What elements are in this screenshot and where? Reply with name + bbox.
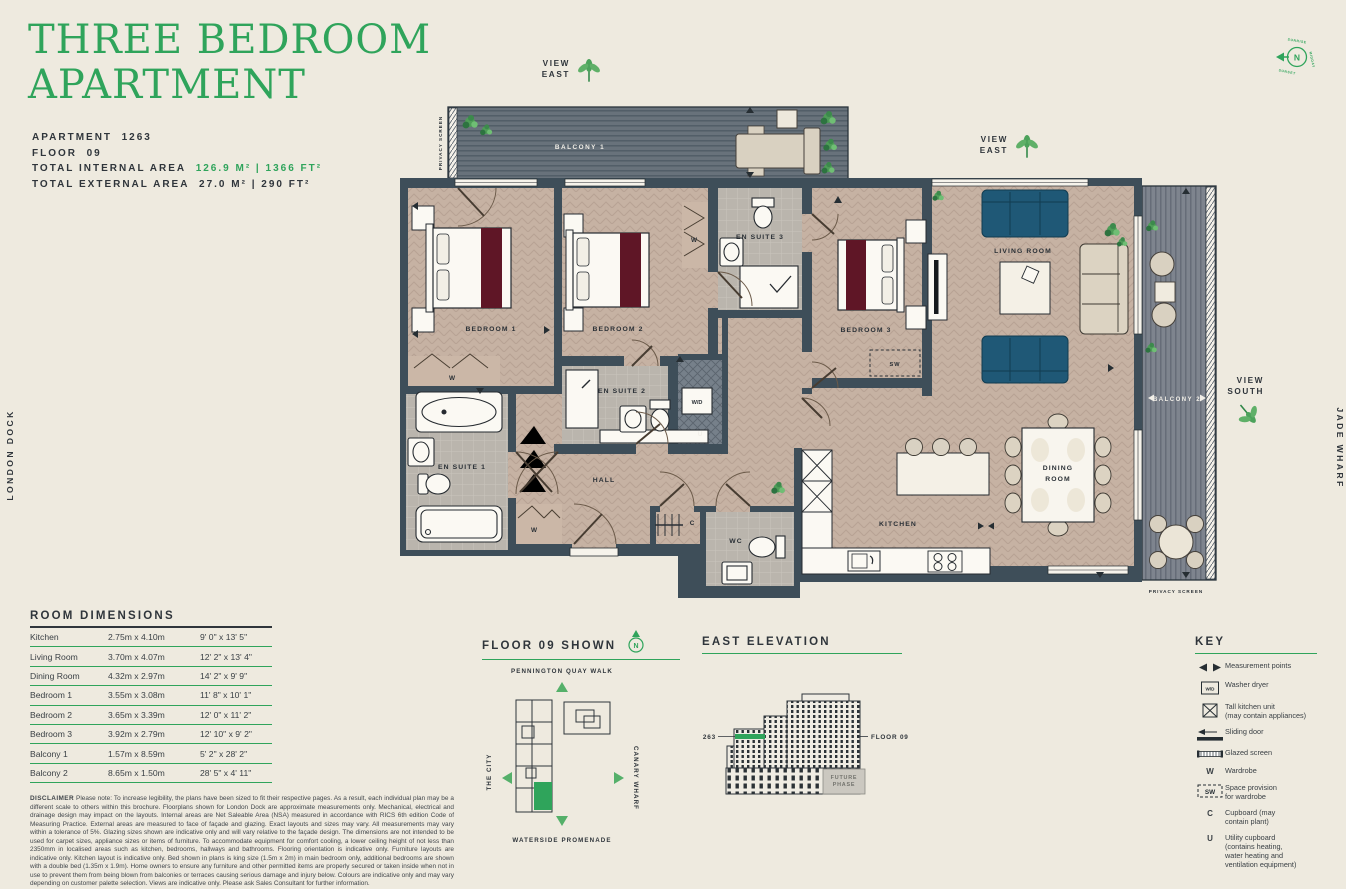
street-right-label: CANARY WHARF — [632, 746, 639, 810]
dining-room-label-2: ROOM — [1045, 476, 1071, 483]
highlighted-floor — [735, 734, 765, 739]
space-wardrobe-label: SW — [889, 362, 900, 368]
key-item: Glazed screen — [1195, 748, 1343, 759]
key-item-label: Space provision for wardrobe — [1225, 783, 1277, 801]
key-item: C Cupboard (may contain plant) — [1195, 808, 1343, 826]
key-item: Measurement points — [1195, 661, 1343, 673]
row-imperial: 12' 10" x 9' 2" — [200, 729, 272, 739]
utility-label: U — [698, 431, 703, 438]
washer-dryer-icon: W/D — [1195, 680, 1225, 695]
bedroom-3-label: BEDROOM 3 — [840, 327, 891, 334]
utility-symbol: U — [1195, 833, 1225, 869]
row-room: Balcony 1 — [30, 749, 108, 759]
key-item-label: Glazed screen — [1225, 748, 1272, 759]
ensuite-2-label: EN SUITE 2 — [598, 388, 646, 395]
key-item: SW Space provision for wardrobe — [1195, 783, 1343, 801]
key-heading: KEY — [1195, 636, 1343, 648]
ensuite-3-label: EN SUITE 3 — [736, 234, 784, 241]
floor-shown-heading: FLOOR 09 SHOWN — [482, 640, 616, 652]
kitchen-label: KITCHEN — [879, 521, 917, 528]
future-phase-label-2: PHASE — [833, 782, 856, 788]
view-east-mid-icon — [1015, 135, 1040, 158]
building-outline-2 — [564, 702, 610, 734]
view-east-mid-label-1: VIEW — [981, 135, 1008, 144]
street-top-label: PENNINGTON QUAY WALK — [511, 668, 613, 675]
external-area-label: TOTAL EXTERNAL AREA — [32, 179, 189, 190]
floor-number: 09 — [87, 148, 102, 159]
view-east-mid-label-2: EAST — [980, 146, 1008, 155]
row-room: Balcony 2 — [30, 768, 108, 778]
disclaimer-body: Please note: To increase legibility, the… — [30, 795, 454, 887]
row-imperial: 14' 2" x 9' 9" — [200, 671, 272, 681]
table-row: Kitchen2.75m x 4.10m9' 0" x 13' 5" — [30, 628, 272, 647]
row-room: Dining Room — [30, 671, 108, 681]
svg-text:SW: SW — [1205, 789, 1216, 796]
wardrobe-label: W — [449, 375, 456, 382]
row-metric: 3.55m x 3.08m — [108, 690, 200, 700]
compass-midday: MIDDAY — [1308, 51, 1315, 68]
row-room: Living Room — [30, 652, 108, 662]
table-row: Living Room3.70m x 4.07m12' 2" x 13' 4" — [30, 647, 272, 666]
wardrobe-bed2: W — [682, 202, 708, 268]
tall-kitchen-unit-icon — [1195, 702, 1225, 720]
key-item: W Wardrobe — [1195, 766, 1343, 776]
title-line-1: THREE BEDROOM — [28, 18, 431, 63]
row-metric: 8.65m x 1.50m — [108, 768, 200, 778]
wardrobe-symbol: W — [1195, 766, 1225, 776]
glazed-screen-icon — [1195, 748, 1225, 759]
hall-label: HALL — [593, 477, 616, 484]
row-room: Bedroom 2 — [30, 710, 108, 720]
key-item: Sliding door — [1195, 727, 1343, 741]
compass-icon: N SUNRISE MIDDAY SUNSET — [1276, 37, 1316, 75]
elevation-floor-label: FLOOR 09 — [871, 734, 909, 741]
kitchen-island — [897, 453, 989, 495]
street-left-label: THE CITY — [486, 754, 493, 791]
key-item-label: Washer dryer — [1225, 680, 1269, 695]
table-row: Dining Room4.32m x 2.97m14' 2" x 9' 9" — [30, 667, 272, 686]
svg-text:N: N — [633, 643, 638, 650]
internal-area-value: 126.9 M² | 1366 FT² — [196, 163, 322, 174]
internal-area-label: TOTAL INTERNAL AREA — [32, 163, 186, 174]
privacy-screen-panel — [449, 108, 457, 178]
row-imperial: 5' 2" x 28' 2" — [200, 749, 272, 759]
key-item-label: Sliding door — [1225, 727, 1264, 741]
view-east-top-label-2: EAST — [542, 70, 570, 79]
view-south-label-2: SOUTH — [1227, 387, 1264, 396]
future-phase-label-1: FUTURE — [831, 775, 858, 781]
compass-sunrise: SUNRISE — [1287, 37, 1307, 44]
east-elevation-heading: EAST ELEVATION — [702, 636, 920, 648]
row-metric: 2.75m x 4.10m — [108, 632, 200, 642]
key-item-label: Tall kitchen unit (may contain appliance… — [1225, 702, 1306, 720]
view-east-top-label-1: VIEW — [543, 59, 570, 68]
east-elevation-section: EAST ELEVATION — [702, 636, 920, 829]
row-room: Kitchen — [30, 632, 108, 642]
row-imperial: 12' 0" x 11' 2" — [200, 710, 272, 720]
bedroom-1-label: BEDROOM 1 — [465, 326, 516, 333]
entrance-threshold — [570, 548, 618, 556]
key-section: KEY Measurement points W/D Washer dryer … — [1195, 636, 1343, 869]
site-plan: PENNINGTON QUAY WALK THE CITY CANARY WHA… — [482, 660, 682, 850]
row-metric: 4.32m x 2.97m — [108, 671, 200, 681]
sliding-door-icon — [1195, 727, 1225, 741]
floor-shown-section: FLOOR 09 SHOWN N PENNINGTON QUAY WALK — [482, 636, 687, 855]
measurement-points-icon — [1195, 661, 1225, 673]
brochure-page: BALCONY 1 PRIVACY SCREEN — [0, 0, 1346, 889]
room-dimensions-heading: ROOM DIMENSIONS — [30, 610, 272, 628]
arrow-south — [556, 816, 568, 826]
table-row: Bedroom 13.55m x 3.08m11' 8" x 10' 1" — [30, 686, 272, 705]
sofa-beige — [1080, 244, 1128, 334]
title-line-2: APARTMENT — [28, 63, 431, 108]
elevation-drawing: FUTURE PHASE 1263 FLOOR 09 — [702, 654, 914, 824]
privacy-screen-label-left: PRIVACY SCREEN — [438, 116, 443, 170]
privacy-screen-label-bottom: PRIVACY SCREEN — [1149, 589, 1203, 594]
wc-label: WC — [729, 538, 743, 545]
arrow-east — [614, 772, 624, 784]
dining-room-label-1: DINING — [1043, 465, 1073, 472]
elevation-apartment-label: 1263 — [702, 734, 716, 741]
arrow-west — [502, 772, 512, 784]
view-south-label-1: VIEW — [1237, 376, 1264, 385]
balcony-2: BALCONY 2 — [1142, 186, 1216, 580]
cupboard-symbol: C — [1195, 808, 1225, 826]
row-metric: 3.65m x 3.39m — [108, 710, 200, 720]
row-metric: 3.92m x 2.79m — [108, 729, 200, 739]
table-row: Bedroom 33.92m x 2.79m12' 10" x 9' 2" — [30, 725, 272, 744]
apartment-label: APARTMENT — [32, 132, 112, 143]
north-icon: N — [625, 630, 647, 654]
london-dock-label: LONDON DOCK — [5, 409, 15, 500]
floor-label: FLOOR — [32, 148, 77, 159]
key-item-label: Wardrobe — [1225, 766, 1257, 776]
table-row: Balcony 11.57m x 8.59m5' 2" x 28' 2" — [30, 744, 272, 763]
row-imperial: 9' 0" x 13' 5" — [200, 632, 272, 642]
key-item-label: Cupboard (may contain plant) — [1225, 808, 1275, 826]
key-item-label: Utility cupboard (contains heating, wate… — [1225, 833, 1296, 869]
row-room: Bedroom 3 — [30, 729, 108, 739]
balcony-1-label: BALCONY 1 — [555, 144, 605, 151]
wardrobe-label: W — [691, 237, 698, 244]
disclaimer-label: DISCLAIMER — [30, 795, 74, 802]
space-wardrobe-icon: SW — [1195, 783, 1225, 801]
svg-text:W/D: W/D — [1206, 687, 1216, 692]
ensuite-1-label: EN SUITE 1 — [438, 464, 486, 471]
wardrobe-label: W — [531, 527, 538, 534]
cupboard-label: C — [690, 520, 695, 527]
view-east-top-icon — [577, 59, 602, 82]
bedroom-2-label: BEDROOM 2 — [592, 326, 643, 333]
key-item: Tall kitchen unit (may contain appliance… — [1195, 702, 1343, 720]
row-imperial: 11' 8" x 10' 1" — [200, 690, 272, 700]
room-dimensions-table: ROOM DIMENSIONS Kitchen2.75m x 4.10m9' 0… — [30, 610, 272, 783]
row-metric: 3.70m x 4.07m — [108, 652, 200, 662]
row-metric: 1.57m x 8.59m — [108, 749, 200, 759]
apartment-number: 1263 — [122, 132, 152, 143]
key-item: W/D Washer dryer — [1195, 680, 1343, 695]
jade-wharf-label: JADE WHARF — [1335, 407, 1345, 488]
compass-north: N — [1294, 53, 1300, 63]
key-item-label: Measurement points — [1225, 661, 1291, 673]
view-south-icon — [1231, 397, 1265, 430]
row-imperial: 12' 2" x 13' 4" — [200, 652, 272, 662]
compass-sunset: SUNSET — [1278, 68, 1296, 76]
external-area-value: 27.0 M² | 290 FT² — [199, 179, 310, 190]
table-row: Bedroom 23.65m x 3.39m12' 0" x 11' 2" — [30, 706, 272, 725]
row-imperial: 28' 5" x 4' 11" — [200, 768, 272, 778]
arrow-north — [556, 682, 568, 692]
balcony-1: BALCONY 1 — [448, 107, 848, 179]
highlighted-unit — [534, 782, 552, 810]
table-row: Balcony 28.65m x 1.50m28' 5" x 4' 11" — [30, 764, 272, 783]
privacy-screen-panel — [1206, 187, 1215, 579]
balcony-2-label: BALCONY 2 — [1153, 397, 1201, 403]
washer-dryer-label: W/D — [692, 400, 703, 406]
apartment-info: APARTMENT 1263 FLOOR 09 TOTAL INTERNAL A… — [32, 132, 322, 194]
living-room-label: LIVING ROOM — [994, 248, 1052, 255]
page-title: THREE BEDROOM APARTMENT — [28, 18, 431, 108]
street-bottom-label: WATERSIDE PROMENADE — [512, 837, 611, 844]
row-room: Bedroom 1 — [30, 690, 108, 700]
key-item: U Utility cupboard (contains heating, wa… — [1195, 833, 1343, 869]
disclaimer: DISCLAIMER Please note: To increase legi… — [30, 795, 454, 889]
wardrobe-hall: W — [516, 504, 562, 544]
